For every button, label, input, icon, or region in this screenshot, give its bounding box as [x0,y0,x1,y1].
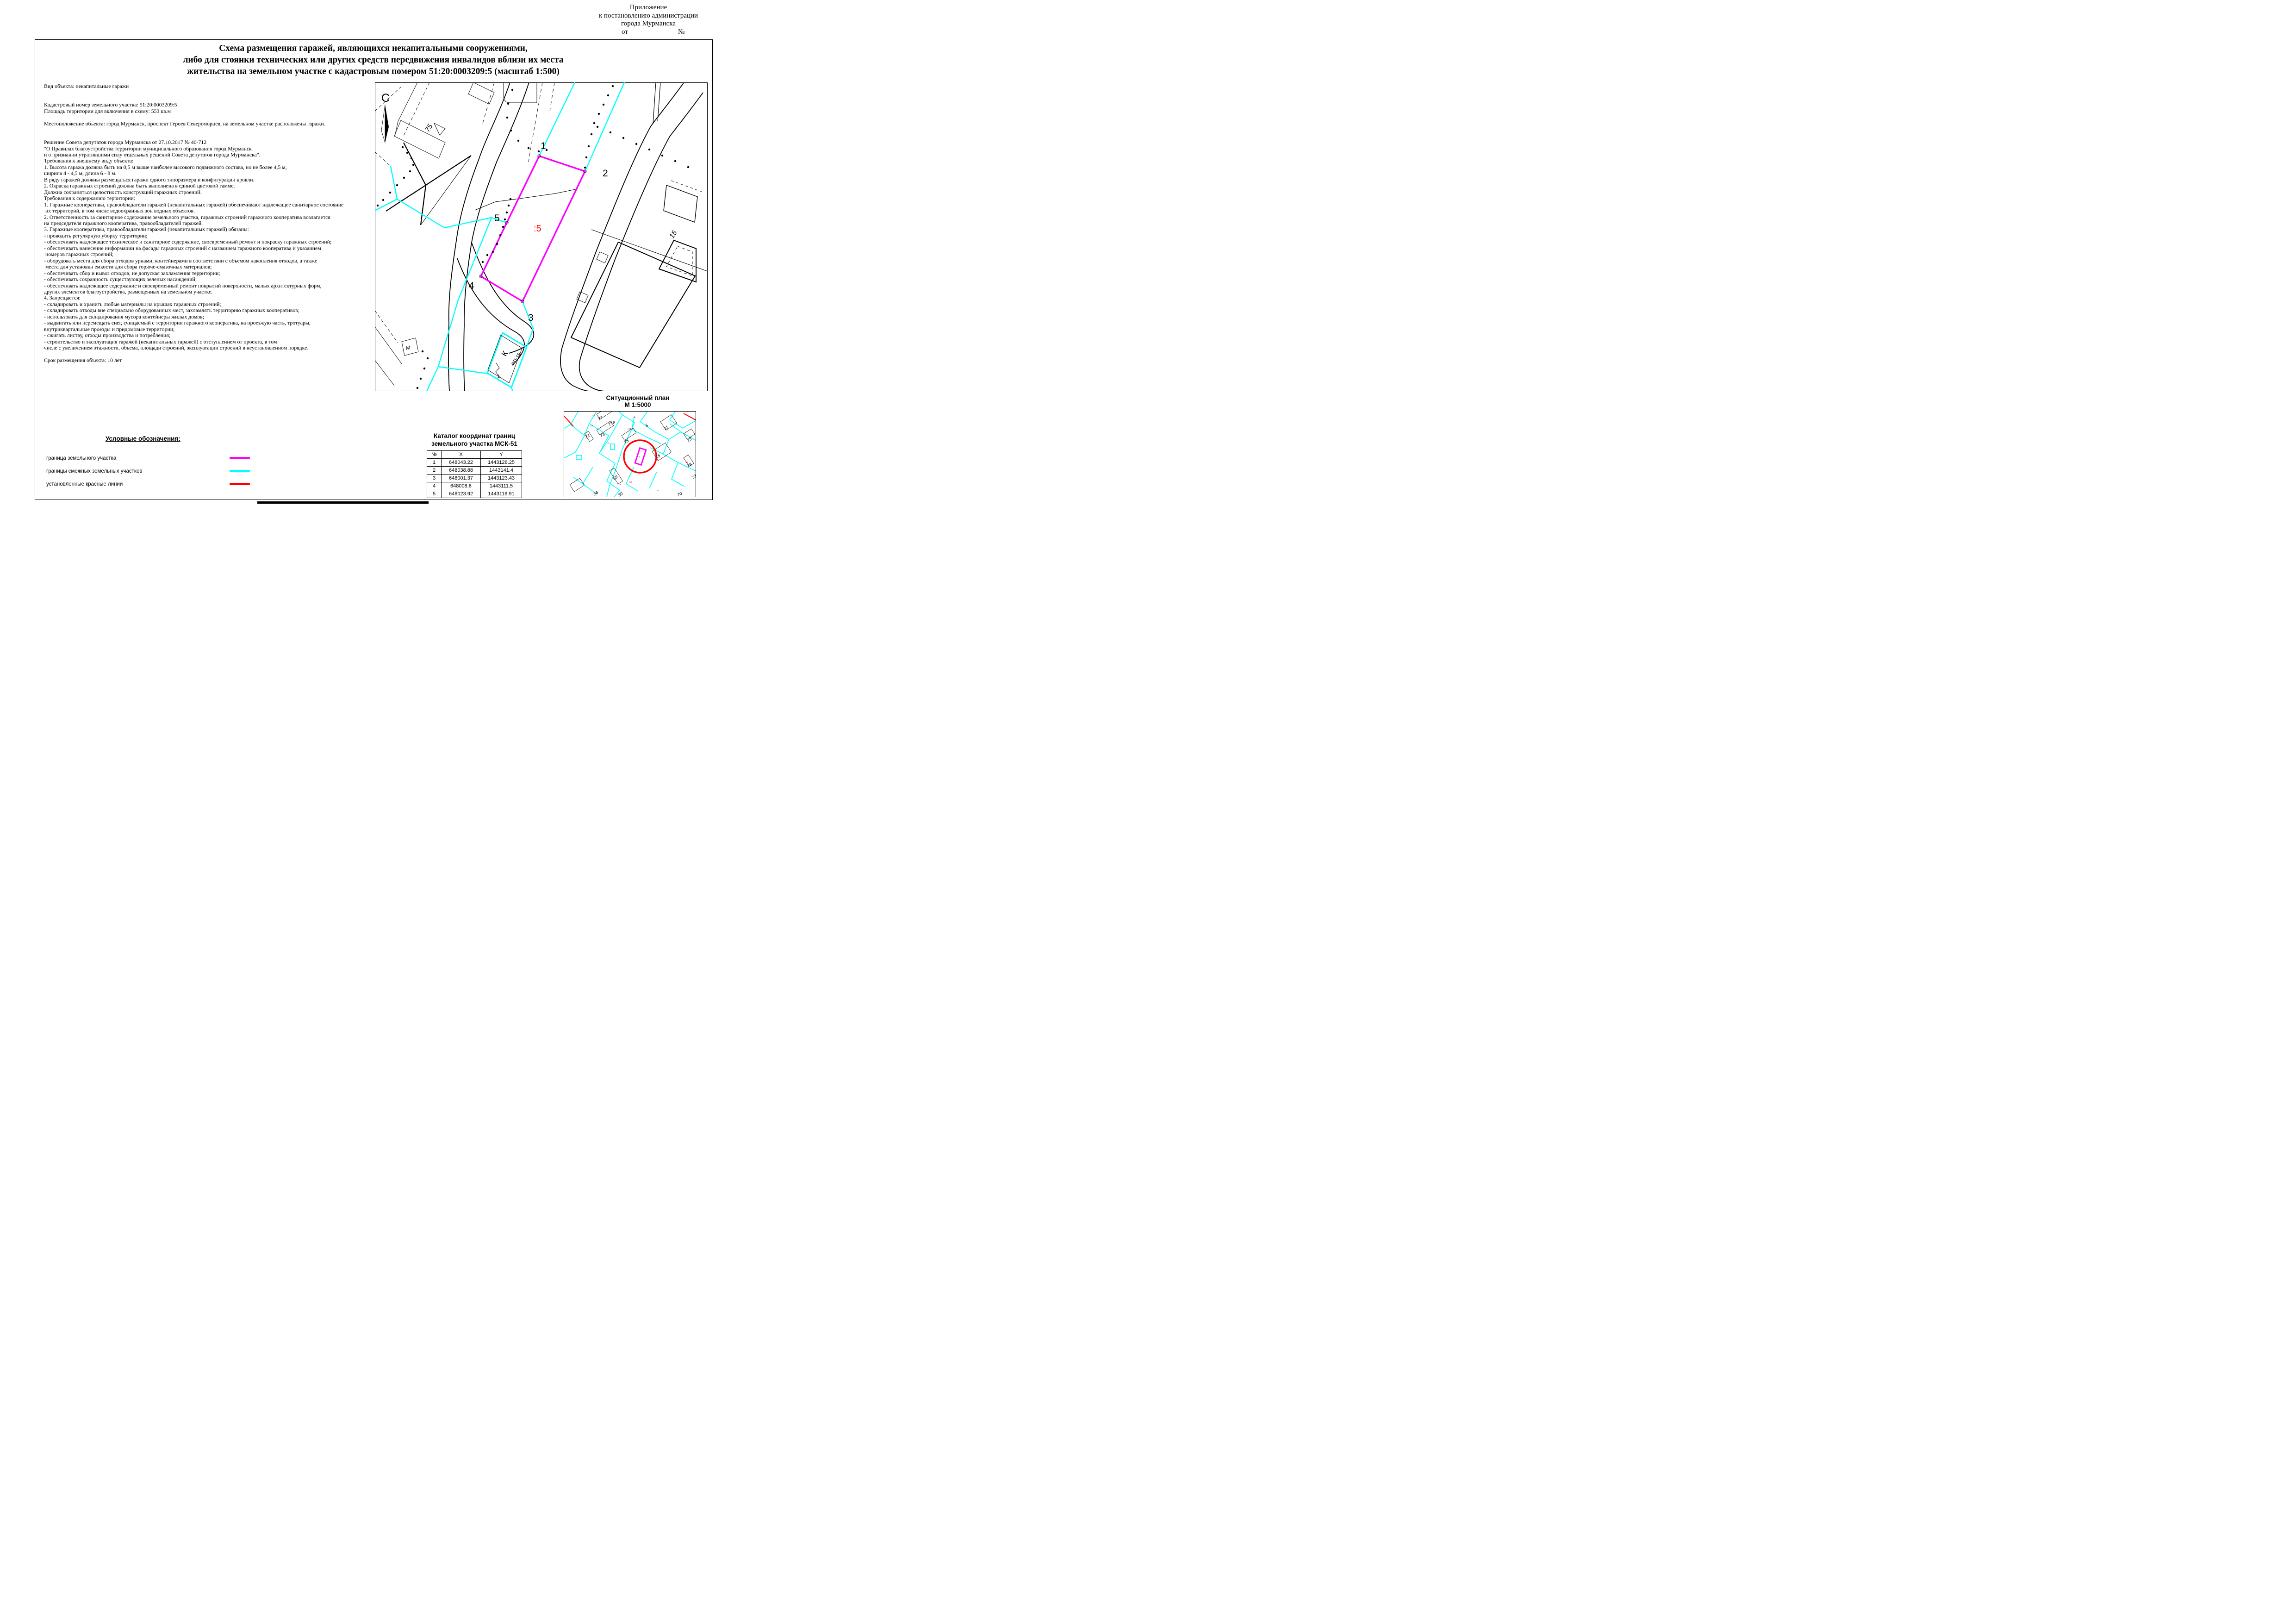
legend-item: границы смежных земельных участков [46,468,250,474]
table-row: 3 648001.37 1443123.43 [427,475,522,482]
coordinate-catalog: Каталог координат границ земельного учас… [419,432,530,498]
cell-y: 1443128.25 [481,459,522,467]
annex-line2: к постановлению администрации [581,12,715,20]
column-header: X [442,451,481,459]
catalog-heading-line1: Каталог координат границ [419,432,530,440]
adjacent-boundaries-swatch [230,470,250,472]
cell-n: 3 [427,475,442,482]
cell-x: 648008.6 [442,482,481,490]
table-row: 1 648043.22 1443128.25 [427,459,522,467]
annex-line1: Приложение [581,4,715,12]
svg-text::47: :47 [585,437,589,439]
annex-block: Приложение к постановлению администрации… [581,4,715,36]
cell-y: 1443111.5 [481,482,522,490]
parcel-boundary-swatch [230,457,250,459]
column-header: Y [481,451,522,459]
cell-n: 4 [427,482,442,490]
cell-y: 1443141.4 [481,467,522,475]
legend-heading: Условные обозначения: [106,435,180,442]
title-line1: Схема размещения гаражей, являющихся нек… [35,43,712,54]
site-plan-map: С 75 [375,82,708,391]
svg-text::9: :9 [657,489,659,492]
requirements-text: Вид объекта: некапитальные гаражи Кадаст… [44,83,382,363]
cell-x: 648001.37 [442,475,481,482]
cell-x: 648038.88 [442,467,481,475]
vertex-5-label: 5 [494,213,500,224]
annex-number-label: № [678,28,684,37]
cell-n: 1 [427,459,442,467]
coordinates-table: № X Y 1 648043.22 1443128.25 2 648038.88… [427,450,522,498]
legend-item-label: граница земельного участка [46,456,116,461]
situational-plan-map: 77 77а 71 73 75 5 11 13 15 69 78 72 26 3… [564,411,696,497]
svg-text::10: :10 [592,492,595,494]
svg-text::39: :39 [633,416,636,418]
cell-y: 1443118.91 [481,490,522,498]
document-page: Приложение к постановлению администрации… [0,0,715,506]
situational-plan-heading: Ситуационный план М 1:5000 [582,394,693,408]
cell-n: 2 [427,467,442,475]
svg-text::52: :52 [685,461,689,463]
title-line2: либо для стоянки технических или других … [35,54,712,66]
red-lines-swatch [230,483,250,485]
legend-item: граница земельного участка [46,456,250,461]
table-row: 5 648023.92 1443118.91 [427,490,522,498]
svg-text::29: :29 [618,483,621,486]
table-row: 4 648008.6 1443111.5 [427,482,522,490]
svg-text::37: :37 [607,442,610,444]
sit-heading-line1: Ситуационный план [582,394,693,401]
legend-item: установленные красные линии [46,481,250,487]
svg-text::32: :32 [629,481,632,483]
annex-line3: города Мурманска [581,20,715,28]
cell-x: 648043.22 [442,459,481,467]
legend-item-label: установленные красные линии [46,481,123,487]
svg-text::38: :38 [628,428,631,430]
vertex-1-label: 1 [541,141,546,151]
parcel-number-label: :5 [534,224,541,234]
column-header: № [427,451,442,459]
annex-date-label: от [622,28,628,37]
svg-text::46: :46 [590,425,593,427]
catalog-heading-line2: земельного участка МСК-51 [419,440,530,448]
north-label: С [381,92,390,105]
catalog-heading: Каталог координат границ земельного учас… [419,432,530,448]
vertex-3-label: 3 [528,312,534,323]
cell-n: 5 [427,490,442,498]
page-title: Схема размещения гаражей, являющихся нек… [35,43,712,77]
title-line3: жительства на земельном участке с кадаст… [35,66,712,77]
vertex-4-label: 4 [469,281,474,291]
vertex-2-label: 2 [603,168,608,179]
bottom-rule [257,501,429,504]
sit-heading-line2: М 1:5000 [582,401,693,408]
svg-text::5: :5 [638,456,640,458]
svg-text::48: :48 [592,414,595,417]
cell-y: 1443123.43 [481,475,522,482]
legend-item-label: границы смежных земельных участков [46,468,143,474]
cell-x: 648023.92 [442,490,481,498]
table-row: 2 648038.88 1443141.4 [427,467,522,475]
